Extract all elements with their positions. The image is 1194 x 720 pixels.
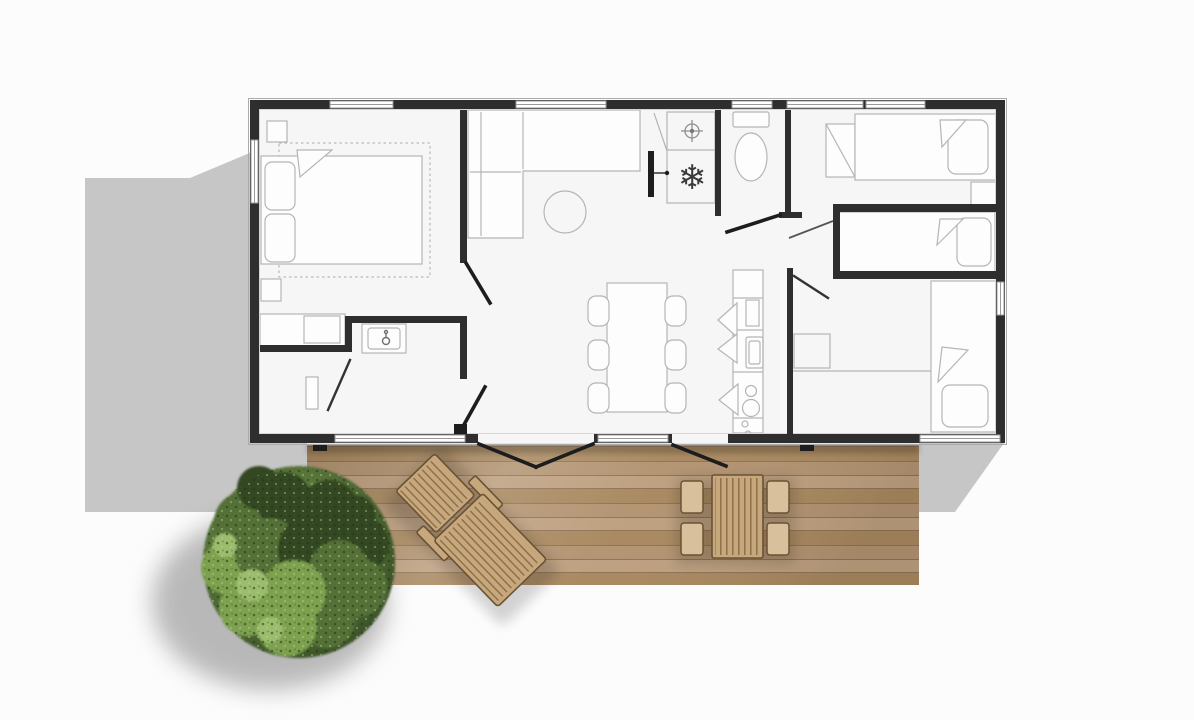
window [598, 435, 668, 442]
wall-nook-left [833, 204, 840, 279]
window [866, 101, 925, 108]
nightstand [267, 121, 287, 142]
step-marker-left [313, 444, 327, 451]
outdoor-chair [681, 523, 703, 555]
outdoor-chair [681, 481, 703, 513]
wall-bedroom2-bottom [833, 204, 1005, 212]
outdoor-chair [767, 481, 789, 513]
nightstand [261, 279, 281, 301]
right-ground-shadow [919, 443, 1004, 512]
dining-chair [588, 296, 609, 326]
wardrobe [306, 377, 318, 409]
wall-showerroom-top [345, 316, 467, 323]
dining-chair [665, 296, 686, 326]
wall-entry-step [345, 322, 352, 352]
wall-showerroom-right [460, 316, 467, 379]
dressing-counter [260, 314, 345, 346]
dining-chair [588, 383, 609, 413]
dining-table [607, 283, 667, 412]
deck-building-shadow [307, 444, 919, 453]
window [251, 140, 258, 203]
window [516, 101, 606, 108]
step-marker-right [800, 444, 814, 451]
pillow [265, 162, 295, 210]
snowflake-icon: ❄ [678, 158, 707, 198]
floor-plan-svg: ❄ [0, 0, 1194, 720]
window [920, 435, 1000, 442]
outdoor-dining-set [676, 475, 794, 564]
wall-wc-right [785, 110, 791, 214]
tree-texture [203, 466, 395, 658]
window [997, 282, 1004, 315]
wall-bath-wc [715, 110, 721, 216]
outdoor-table-slats [715, 478, 760, 555]
wall-kitchen-bedroom3 [787, 268, 793, 443]
dining-chair [665, 340, 686, 370]
dining-chair [665, 383, 686, 413]
building: ❄ [249, 99, 1007, 468]
wall-master-living [460, 110, 467, 263]
window [787, 101, 863, 108]
toilet-tank [733, 112, 769, 127]
wc [733, 112, 769, 181]
floor-plan-scene: ❄ [0, 0, 1194, 720]
dining-chair [588, 340, 609, 370]
wall-hall-stub [779, 212, 802, 218]
wall-nook-bottom [833, 271, 1005, 279]
toilet-bowl [735, 133, 767, 181]
window [330, 101, 393, 108]
pillow [265, 214, 295, 262]
pillow [957, 218, 991, 266]
outdoor-chair [767, 523, 789, 555]
wall-entry [260, 345, 352, 352]
window [335, 435, 465, 442]
pillow [942, 385, 988, 427]
window [732, 101, 772, 108]
